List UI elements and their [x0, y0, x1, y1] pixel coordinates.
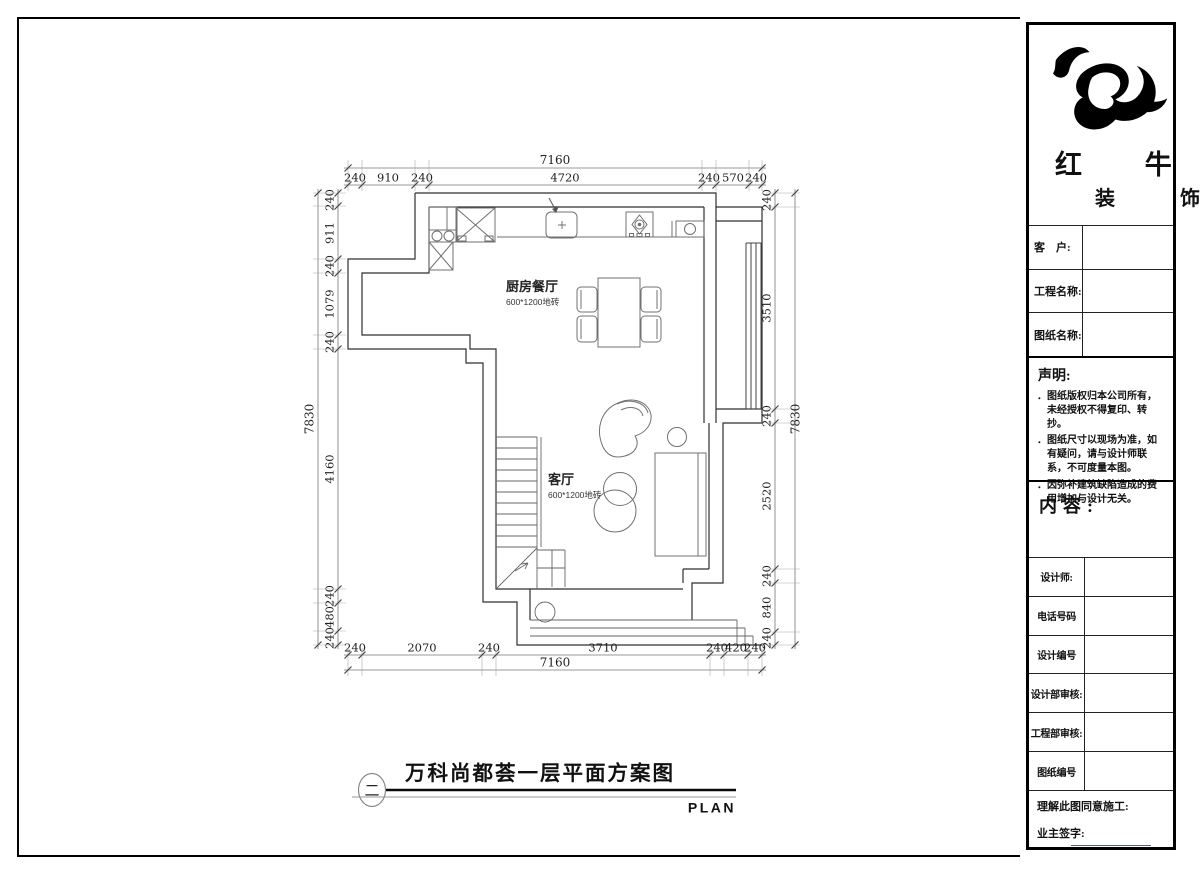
field-row-drawing: 图纸名称: [1029, 312, 1173, 356]
dim-label: 7830 [789, 404, 803, 435]
wall-inner [362, 207, 704, 589]
dim-label: 7160 [540, 656, 571, 670]
stair-treads [496, 437, 537, 547]
dim-label: 240 [698, 171, 720, 185]
bullet-marker: ． [1037, 390, 1047, 404]
field-value [1085, 636, 1173, 674]
water-heater-icon [676, 221, 704, 237]
dim-label: 3710 [588, 641, 617, 655]
dim-label: 7830 [303, 404, 317, 435]
field-label: 设计师: [1029, 558, 1085, 596]
field-row-project: 工程名称: [1029, 269, 1173, 313]
fridge-icon [456, 208, 495, 242]
statement-title: 声明: [1038, 365, 1166, 385]
living-furniture [594, 400, 706, 556]
redbull-logo-icon [1029, 27, 1173, 139]
field-label: 客 户: [1029, 226, 1083, 269]
dim-label: 240 [323, 585, 337, 607]
field-row-engineering-review: 工程部审核: [1029, 712, 1173, 751]
coffee-table [604, 473, 637, 506]
dim-label: 4160 [323, 454, 337, 483]
statement-text: 图纸尺寸以现场为准，如有疑问，请与设计师联系，不可度量本图。 [1047, 435, 1157, 474]
field-value [1083, 226, 1173, 269]
signature-line [1071, 844, 1151, 846]
room-label-living: 客厅 [548, 472, 574, 487]
sink-symbol [546, 198, 577, 238]
drawing-sheet: 7160 240 910 240 4720 240 570 240 240 20… [0, 0, 1200, 875]
dim-label: 240 [344, 171, 366, 185]
field-row-drawing-no: 图纸编号 [1029, 751, 1173, 790]
dim-label: 240 [323, 331, 337, 353]
side-table [668, 428, 687, 447]
dim-label: 240 [323, 189, 337, 211]
floorplan-walls [348, 193, 762, 645]
dim-label: 480 [323, 606, 337, 628]
field-value [1085, 558, 1173, 596]
room-floor-spec: 600*1200地砖 [548, 490, 602, 500]
dim-label: 240 [760, 565, 774, 587]
title-block-sidebar: 红 牛 装 饰 客 户: 工程名称: 图纸名称: 声明: ． 图纸版权归本 [1026, 22, 1176, 850]
dim-label: 910 [377, 171, 399, 185]
stair-lower-steps [537, 550, 565, 587]
field-label: 设计部审核: [1029, 674, 1085, 712]
dim-label: 570 [722, 171, 744, 185]
field-value [1083, 270, 1173, 313]
field-value [1085, 597, 1173, 635]
field-label: 电话号码 [1029, 597, 1085, 635]
statement-text: 图纸版权归本公司所有，未经授权不得复印、转抄。 [1047, 391, 1157, 430]
dining-table [598, 278, 640, 347]
field-label: 工程部审核: [1029, 713, 1085, 751]
dim-label: 7160 [540, 153, 571, 167]
dim-label: 240 [478, 641, 500, 655]
dim-label: 4720 [550, 171, 579, 185]
field-row-design-no: 设计编号 [1029, 635, 1173, 674]
wall-outer [348, 193, 762, 645]
stair-arrow [515, 563, 528, 571]
floorplan-canvas: 7160 240 910 240 4720 240 570 240 240 20… [0, 0, 1020, 875]
dim-label: 240 [760, 189, 774, 211]
dim-lines [318, 168, 795, 670]
dim-label: 240 [323, 255, 337, 277]
stair-edge [537, 437, 541, 589]
brand-name: 红 牛 [1055, 143, 1173, 182]
dining-chair [577, 287, 661, 342]
dim-label: 911 [323, 222, 337, 244]
dim-label: 240 [411, 171, 433, 185]
field-row-phone: 电话号码 [1029, 596, 1173, 635]
sheet-title: 万科尚都荟一层平面方案图 [404, 761, 675, 785]
field-row-customer: 客 户: [1029, 226, 1173, 269]
field-row-designer: 设计师: [1029, 558, 1173, 596]
cabinet-icon [429, 207, 457, 270]
terrace-planter [535, 602, 555, 622]
terrace-steps [530, 602, 753, 645]
dim-label: 240 [344, 641, 366, 655]
dim-label: 2520 [760, 481, 774, 510]
room-label-kitchen-dining: 厨房餐厅 [506, 279, 558, 294]
dimensions: 7160 240 910 240 4720 240 570 240 240 20… [303, 153, 803, 676]
field-label: 图纸编号 [1029, 752, 1085, 790]
approval-fields: 设计师: 电话号码 设计编号 设计部审核: 工程部审核: 图纸编号 [1029, 557, 1173, 790]
dim-label: 240 [745, 171, 767, 185]
counter-front [497, 221, 704, 237]
dim-label: 840 [760, 597, 774, 619]
field-value [1085, 752, 1173, 790]
dim-label: 240 [323, 627, 337, 649]
brand-name-sub: 装 饰 [1095, 182, 1173, 211]
dining-set [577, 278, 661, 347]
construction-consent-note: 理解此图同意施工: [1037, 798, 1165, 814]
dim-ticks [315, 165, 799, 674]
kitchen-fixtures [429, 198, 704, 270]
field-label: 图纸名称: [1029, 313, 1083, 356]
field-value [1085, 713, 1173, 751]
content-label: 内容: [1039, 496, 1099, 516]
bay-window [746, 243, 762, 409]
bullet-marker: ． [1037, 434, 1047, 448]
field-row-design-review: 设计部审核: [1029, 673, 1173, 712]
staircase [496, 437, 565, 589]
dim-label: 240 [760, 627, 774, 649]
content-cell: 内容: [1029, 480, 1173, 557]
dim-label: 3510 [760, 293, 774, 322]
field-label: 工程名称: [1029, 270, 1083, 313]
statement-item: ． 图纸版权归本公司所有，未经授权不得复印、转抄。 [1036, 390, 1166, 431]
field-label: 设计编号 [1029, 636, 1085, 674]
signature-block: 理解此图同意施工: 业主签字: [1029, 790, 1173, 847]
dim-label: 1079 [323, 289, 337, 318]
sheet-title-latin: PLAN [688, 800, 736, 816]
dim-label: 2070 [407, 641, 436, 655]
owner-signature-label: 业主签字: [1037, 825, 1165, 841]
brand-cell: 红 牛 装 饰 [1029, 25, 1173, 225]
field-value [1083, 313, 1173, 356]
statement-item: ． 图纸尺寸以现场为准，如有疑问，请与设计师联系，不可度量本图。 [1036, 434, 1166, 475]
stair-diagonal [497, 548, 537, 588]
stove-symbol [626, 212, 653, 237]
field-value [1085, 674, 1173, 712]
statement-block: 声明: ． 图纸版权归本公司所有，未经授权不得复印、转抄。 ． 图纸尺寸以现场为… [1029, 356, 1173, 480]
dim-label: 240 [760, 405, 774, 427]
sofa [655, 453, 706, 556]
info-fields: 客 户: 工程名称: 图纸名称: [1029, 225, 1173, 356]
sheet-title-block: 二 万科尚都荟一层平面方案图 PLAN [352, 761, 736, 816]
room-floor-spec: 600*1200地砖 [506, 297, 560, 307]
